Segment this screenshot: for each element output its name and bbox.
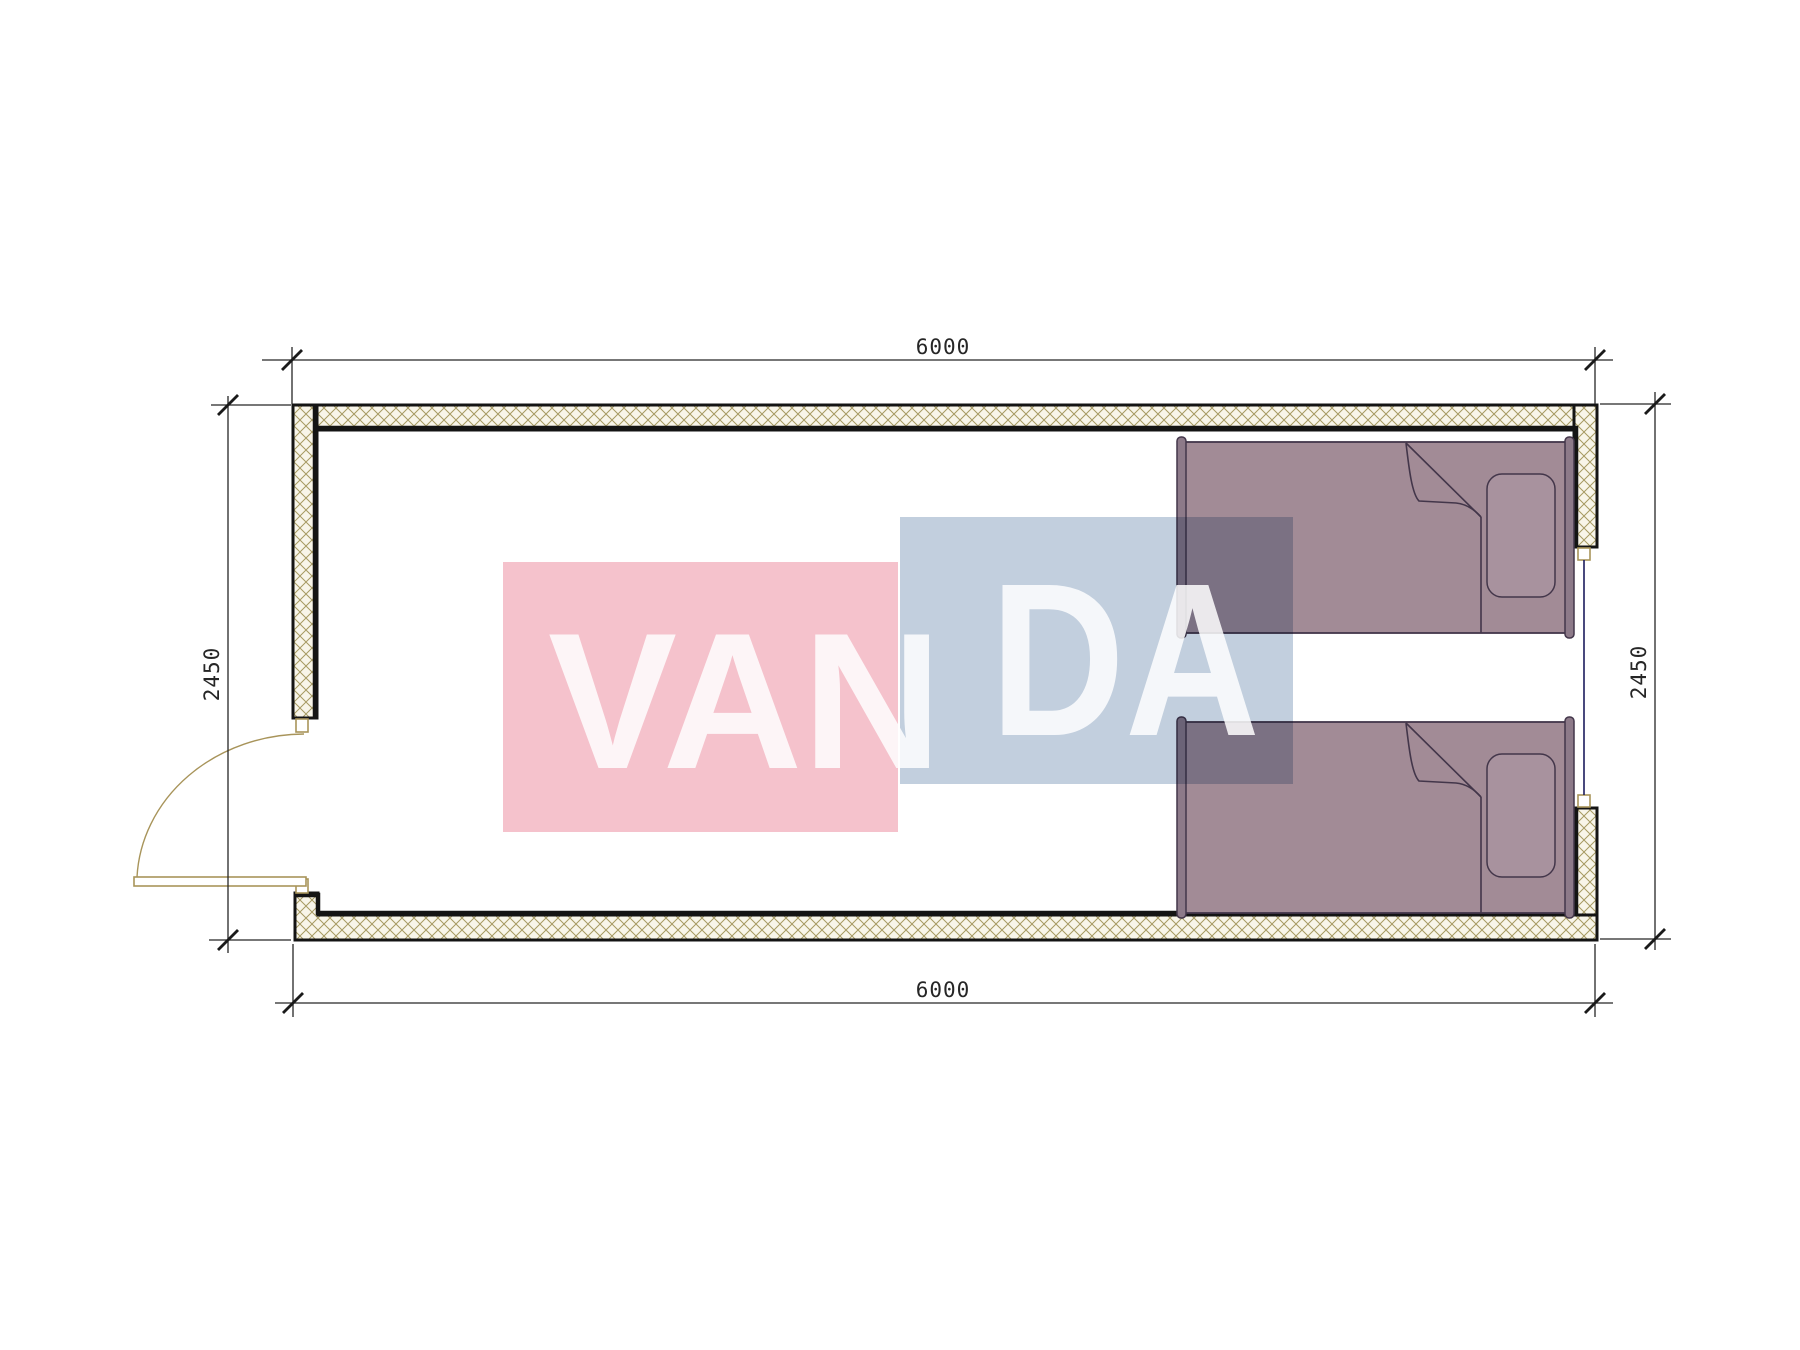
door-swing-arc (137, 734, 304, 877)
door-leaf (134, 877, 306, 886)
dim-label-top-width: 6000 (916, 335, 971, 359)
door-jamb-upper (296, 719, 308, 732)
window-jamb-lower (1578, 795, 1590, 807)
dim-label-left-height: 2450 (200, 647, 224, 702)
floor-plan-canvas: 6000 6000 2450 2450 VAN DA (0, 0, 1800, 1350)
dimension-left: 2450 (200, 395, 291, 953)
window (1578, 548, 1590, 807)
watermark-text-van: VAN (548, 593, 942, 810)
bed-post-right (1565, 437, 1574, 638)
pillow (1487, 474, 1555, 597)
dimension-bottom: 6000 (275, 944, 1613, 1017)
window-jamb-upper (1578, 548, 1590, 560)
dim-label-bottom-width: 6000 (916, 978, 971, 1002)
dimension-right: 2450 (1600, 392, 1671, 950)
dimension-top: 6000 (262, 335, 1613, 404)
door (134, 719, 308, 893)
watermark-text-da: DA (990, 539, 1260, 782)
floor-plan-drawing: 6000 6000 2450 2450 VAN DA (0, 0, 1800, 1350)
dim-label-right-height: 2450 (1627, 645, 1651, 700)
watermark: VAN DA (503, 517, 1293, 832)
